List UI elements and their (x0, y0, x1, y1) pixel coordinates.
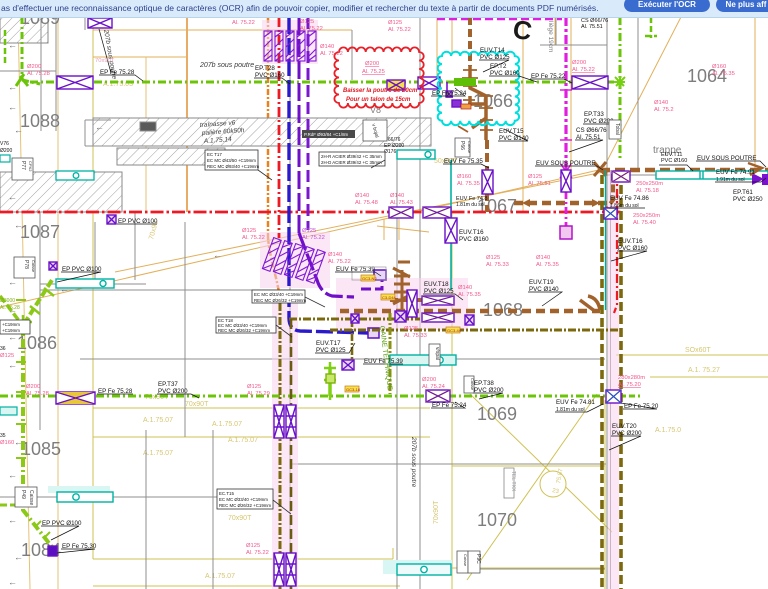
svg-text:EP.T37: EP.T37 (158, 381, 178, 388)
svg-text:2H-R ACIER Ø39/42 +C 35mm: 2H-R ACIER Ø39/42 +C 35mm (321, 154, 382, 159)
svg-text:TEL.TXX: TEL.TXX (510, 471, 516, 492)
svg-text:Tobal: Tobal (614, 123, 620, 135)
svg-text:Caisse: Caisse (470, 378, 475, 391)
svg-text:Ø200: Ø200 (0, 148, 12, 154)
svg-text:1085: 1085 (21, 439, 61, 459)
svg-text:Al. 75.22: Al. 75.22 (388, 27, 411, 33)
svg-text:Al. 75.28: Al. 75.28 (26, 391, 49, 397)
svg-text:Ø125: Ø125 (300, 19, 314, 25)
svg-text:Al. 75.24: Al. 75.24 (422, 384, 446, 390)
svg-text:A.1.75.07: A.1.75.07 (228, 437, 258, 444)
svg-text:P49: P49 (20, 490, 26, 499)
svg-text:Ø125: Ø125 (247, 384, 261, 390)
svg-text:A.1.75.0: A.1.75.0 (655, 427, 681, 434)
svg-text:A.1.75.07: A.1.75.07 (212, 421, 242, 428)
svg-text:Ø125: Ø125 (528, 174, 542, 180)
svg-text:GC3-18: GC3-18 (346, 387, 361, 392)
svg-text:Al. 75.35: Al. 75.35 (458, 292, 481, 298)
svg-text:Al. 75.35: Al. 75.35 (712, 71, 735, 77)
svg-text:EUV Fe 74.86: EUV Fe 74.86 (610, 195, 649, 202)
svg-text:1.81m du sol: 1.81m du sol (456, 202, 485, 208)
svg-text:Al. 75.35: Al. 75.35 (457, 181, 480, 187)
svg-text:Al. 75.25: Al. 75.25 (362, 69, 385, 75)
svg-text:2H-D ACIER Ø39/42 +C 35mm: 2H-D ACIER Ø39/42 +C 35mm (321, 160, 382, 165)
svg-text:EUV.T16: EUV.T16 (459, 229, 484, 236)
svg-text:←: ← (8, 82, 17, 92)
svg-text:Ø125: Ø125 (388, 20, 402, 26)
svg-text:EUV.T18: EUV.T18 (424, 281, 449, 288)
svg-text:Ø176: Ø176 (384, 149, 396, 155)
svg-text:EUV.T16: EUV.T16 (618, 238, 643, 245)
svg-text:REC MC Ø26/32 +C19mm: REC MC Ø26/32 +C19mm (254, 298, 306, 303)
svg-text:Al. 75.20: Al. 75.20 (618, 382, 641, 388)
svg-text:70x90T: 70x90T (433, 500, 440, 524)
svg-text:1088: 1088 (20, 111, 60, 131)
svg-text:V76: V76 (0, 141, 9, 147)
svg-text:A.1.75.07: A.1.75.07 (143, 417, 173, 424)
svg-text:Al. 75.29: Al. 75.29 (247, 391, 270, 397)
svg-text:Ø125: Ø125 (486, 255, 500, 261)
svg-text:Ø125: Ø125 (0, 353, 14, 359)
svg-text:P.RdF Ø93/84 +C1/8m: P.RdF Ø93/84 +C1/8m (304, 132, 349, 137)
svg-text:207b sous poutre: 207b sous poutre (410, 436, 417, 488)
svg-text:Ø125: Ø125 (242, 228, 256, 234)
svg-text:Ø140: Ø140 (654, 100, 668, 106)
svg-text:EC MC Ø33/40 +C19mm: EC MC Ø33/40 +C19mm (254, 292, 303, 297)
svg-text:1089: 1089 (20, 17, 60, 28)
svg-text:←: ← (8, 577, 17, 587)
svg-text:1068: 1068 (483, 300, 523, 320)
svg-text:EUV.T17: EUV.T17 (316, 340, 341, 347)
svg-text:←: ← (213, 250, 222, 260)
svg-text:Ø140: Ø140 (536, 255, 550, 261)
svg-text:Al. 75.33: Al. 75.33 (404, 333, 427, 339)
svg-text:P78: P78 (23, 260, 29, 269)
svg-text:GC3-44: GC3-44 (447, 328, 462, 333)
svg-text:CS Ø66/76: CS Ø66/76 (576, 127, 607, 134)
svg-text:+C19mm: +C19mm (2, 322, 20, 327)
svg-text:70x90T: 70x90T (185, 401, 209, 408)
svg-text:Al. 75.18: Al. 75.18 (636, 188, 659, 194)
svg-text:EUV.T20: EUV.T20 (612, 423, 637, 430)
svg-text:EC MC Ø43/50 +C19mm: EC MC Ø43/50 +C19mm (207, 158, 256, 163)
svg-text:PVC Ø160: PVC Ø160 (661, 158, 687, 164)
svg-text:EUV.T19: EUV.T19 (529, 279, 554, 286)
svg-text:Caisse: Caisse (467, 141, 472, 154)
svg-text:Al. 75.22: Al. 75.22 (300, 26, 323, 32)
svg-text:Ø160: Ø160 (712, 64, 726, 70)
svg-text:Ø200: Ø200 (26, 384, 40, 390)
svg-text:Al. 75.33: Al. 75.33 (486, 262, 509, 268)
svg-text:A.1.75.07: A.1.75.07 (205, 573, 235, 580)
svg-text:Ø200: Ø200 (422, 377, 436, 383)
svg-text:GC3-N2: GC3-N2 (362, 276, 377, 281)
svg-text:250x250m: 250x250m (633, 213, 660, 219)
svg-text:Al. 75.2: Al. 75.2 (654, 107, 674, 113)
svg-text:Al. 75.51: Al. 75.51 (581, 24, 603, 30)
svg-text:A.1. 75.27: A.1. 75.27 (688, 367, 720, 374)
svg-text:EC.T15: EC.T15 (219, 491, 234, 496)
svg-text:Al. 75.22: Al. 75.22 (572, 67, 595, 73)
svg-text:+C19mm: +C19mm (2, 328, 20, 333)
svg-text:EUV Fe 74.81: EUV Fe 74.81 (556, 399, 595, 406)
svg-text:Al. 75.51: Al. 75.51 (528, 181, 551, 187)
svg-text:v/spal: v/spal (434, 347, 440, 360)
svg-text:Ø140: Ø140 (320, 44, 334, 50)
svg-text:Ø160: Ø160 (0, 440, 14, 446)
svg-text:liège 19cm: liège 19cm (547, 21, 554, 52)
svg-text:70x90T: 70x90T (228, 515, 252, 522)
svg-text:Ø3000: Ø3000 (0, 298, 15, 304)
svg-text:Al. 75.35: Al. 75.35 (536, 262, 559, 268)
svg-text:←: ← (8, 102, 17, 112)
svg-text:Al. 75.22: Al. 75.22 (246, 550, 269, 556)
svg-text:EUV.T14: EUV.T14 (480, 47, 505, 54)
svg-text:Baisser la poutre de 20cm: Baisser la poutre de 20cm (343, 88, 418, 94)
svg-text:Ø200: Ø200 (365, 61, 379, 67)
svg-text:EUV Fe 74.91: EUV Fe 74.91 (716, 169, 755, 176)
svg-text:REC MC Ø26/32 +C19mm: REC MC Ø26/32 +C19mm (219, 503, 271, 508)
svg-text:Ø125: Ø125 (404, 326, 418, 332)
svg-text:1087: 1087 (20, 222, 60, 242)
svg-text:70x90T: 70x90T (95, 58, 115, 64)
svg-text:Ø140: Ø140 (355, 193, 369, 199)
svg-text:Caisse: Caisse (31, 260, 36, 273)
svg-text:Ø140: Ø140 (328, 252, 342, 258)
svg-text:280x280m: 280x280m (618, 375, 645, 381)
svg-text:CPX2: CPX2 (28, 161, 33, 172)
svg-text:Al. 75.28: Al. 75.28 (27, 71, 50, 77)
svg-text:C3-D44: C3-D44 (382, 295, 397, 300)
svg-text:Al. 75.22: Al. 75.22 (232, 20, 255, 26)
svg-text:EC MC Ø33/40 +C19mm: EC MC Ø33/40 +C19mm (219, 497, 268, 502)
svg-text:Caisse: Caisse (28, 490, 34, 506)
svg-text:1069: 1069 (477, 404, 517, 424)
svg-text:Al. 75.22: Al. 75.22 (242, 235, 265, 241)
svg-text:1070: 1070 (477, 510, 517, 530)
svg-text:Ø200: Ø200 (27, 64, 41, 70)
svg-text:36: 36 (0, 346, 6, 352)
svg-text:P66: P66 (459, 141, 465, 150)
svg-text:←: ← (8, 40, 17, 50)
svg-text:SOx60T: SOx60T (685, 347, 711, 354)
svg-text:207b sous poutre: 207b sous poutre (199, 62, 254, 69)
svg-text:←: ← (8, 192, 17, 202)
svg-text:Al. 75.22: Al. 75.22 (320, 51, 343, 57)
svg-text:Ø125: Ø125 (246, 543, 260, 549)
svg-text:EP.T38: EP.T38 (474, 380, 494, 387)
svg-text:EP.T2: EP.T2 (490, 63, 507, 70)
svg-text:EP.T61: EP.T61 (733, 189, 753, 196)
svg-text:Ø200: Ø200 (572, 60, 586, 66)
svg-text:EUV.T15: EUV.T15 (499, 128, 524, 135)
svg-text:Pour un talon de 15cm: Pour un talon de 15cm (346, 97, 411, 103)
svg-text:←: ← (8, 360, 17, 370)
svg-text:Ø140: Ø140 (390, 193, 404, 199)
svg-text:Caisse: Caisse (463, 554, 468, 567)
svg-text:PVC Ø250: PVC Ø250 (733, 196, 763, 203)
svg-text:EP.T33: EP.T33 (584, 111, 604, 118)
svg-text:PVC Ø160: PVC Ø160 (459, 236, 489, 243)
svg-text:←: ← (95, 122, 104, 132)
svg-text:←: ← (8, 470, 17, 480)
svg-text:Al. 75.43: Al. 75.43 (390, 200, 413, 206)
svg-text:Ø140: Ø140 (458, 285, 472, 291)
svg-text:Al. 75.48: Al. 75.48 (355, 200, 378, 206)
svg-text:P77: P77 (20, 161, 26, 170)
svg-text:REC MC Ø93/40 +C19mm: REC MC Ø93/40 +C19mm (207, 164, 259, 169)
svg-text:EC T17: EC T17 (207, 152, 222, 157)
svg-text:Al. 75.28: Al. 75.28 (0, 305, 20, 311)
svg-text:250x250m: 250x250m (636, 181, 663, 187)
svg-text:P9C: P9C (475, 554, 481, 564)
svg-text:Ø125: Ø125 (302, 228, 316, 234)
svg-text:EP.T28: EP.T28 (255, 65, 275, 72)
svg-text:A.1.75.07: A.1.75.07 (143, 450, 173, 457)
svg-text:Al. 75.22: Al. 75.22 (302, 235, 325, 241)
svg-text:Al. 75.22: Al. 75.22 (328, 259, 351, 265)
svg-text:Ø160: Ø160 (457, 174, 471, 180)
svg-text:←: ← (8, 515, 17, 525)
svg-text:REC MC Ø26/32 +C19mm: REC MC Ø26/32 +C19mm (218, 328, 270, 333)
svg-text:Al. 75.40: Al. 75.40 (633, 220, 656, 226)
svg-text:←: ← (8, 277, 17, 287)
svg-text:35: 35 (0, 433, 6, 439)
